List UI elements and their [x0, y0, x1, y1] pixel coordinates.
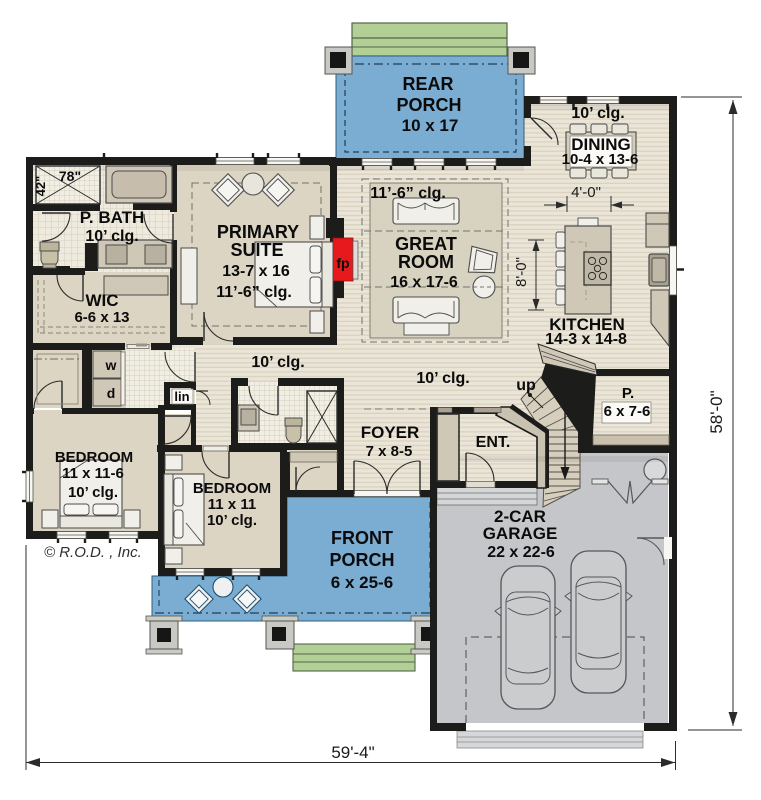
svg-text:59'-4": 59'-4": [331, 743, 374, 762]
svg-text:ENT.: ENT.: [476, 434, 511, 451]
svg-text:up: up: [516, 377, 536, 394]
svg-text:PORCH: PORCH: [396, 95, 461, 115]
svg-text:10’ clg.: 10’ clg.: [85, 228, 138, 245]
svg-text:PRIMARY: PRIMARY: [217, 222, 299, 242]
svg-text:WIC: WIC: [85, 291, 118, 310]
svg-text:16 x 17-6: 16 x 17-6: [390, 274, 458, 291]
svg-text:58'-0": 58'-0": [707, 390, 726, 433]
svg-text:6-6 x 13: 6-6 x 13: [74, 309, 129, 326]
svg-text:lin: lin: [174, 389, 189, 404]
svg-text:GARAGE: GARAGE: [483, 524, 558, 543]
svg-text:7 x 8-5: 7 x 8-5: [366, 443, 413, 460]
svg-text:10’ clg.: 10’ clg.: [571, 105, 624, 122]
svg-text:10-4 x 13-6: 10-4 x 13-6: [562, 151, 639, 168]
svg-text:8'-0": 8'-0": [513, 257, 530, 287]
svg-text:FRONT: FRONT: [331, 528, 393, 548]
svg-text:P. BATH: P. BATH: [80, 208, 145, 227]
svg-text:BEDROOM: BEDROOM: [55, 449, 133, 466]
svg-text:4'-0": 4'-0": [571, 184, 601, 201]
svg-text:11’-6” clg.: 11’-6” clg.: [216, 284, 292, 301]
svg-text:d: d: [107, 385, 116, 401]
svg-text:11 x 11-6: 11 x 11-6: [62, 465, 124, 482]
svg-text:BEDROOM: BEDROOM: [193, 480, 271, 497]
svg-text:10 x 17: 10 x 17: [402, 116, 459, 135]
svg-text:6 x 25-6: 6 x 25-6: [331, 573, 393, 592]
svg-text:14-3 x 14-8: 14-3 x 14-8: [545, 331, 627, 348]
svg-text:10’ clg.: 10’ clg.: [416, 370, 469, 387]
svg-text:w: w: [105, 357, 117, 373]
svg-text:11’-6” clg.: 11’-6” clg.: [370, 185, 446, 202]
svg-text:P.: P.: [622, 385, 634, 402]
svg-text:10’ clg.: 10’ clg.: [207, 512, 257, 529]
svg-text:fp: fp: [336, 255, 349, 271]
svg-text:10’ clg.: 10’ clg.: [251, 354, 304, 371]
svg-text:ROOM: ROOM: [398, 252, 454, 272]
svg-text:SUITE: SUITE: [230, 240, 283, 260]
svg-text:22 x 22-6: 22 x 22-6: [487, 544, 555, 561]
svg-text:13-7 x 16: 13-7 x 16: [222, 263, 290, 280]
svg-text:11 x 11: 11 x 11: [208, 496, 256, 513]
svg-text:PORCH: PORCH: [329, 550, 394, 570]
svg-text:78": 78": [59, 168, 81, 184]
svg-text:REAR: REAR: [402, 74, 453, 94]
svg-text:6 x 7-6: 6 x 7-6: [604, 403, 651, 420]
svg-text:FOYER: FOYER: [361, 423, 420, 442]
svg-text:GREAT: GREAT: [395, 234, 457, 254]
svg-text:© R.O.D. , Inc.: © R.O.D. , Inc.: [44, 544, 142, 561]
svg-text:42": 42": [33, 176, 48, 197]
svg-text:10’ clg.: 10’ clg.: [68, 484, 118, 501]
